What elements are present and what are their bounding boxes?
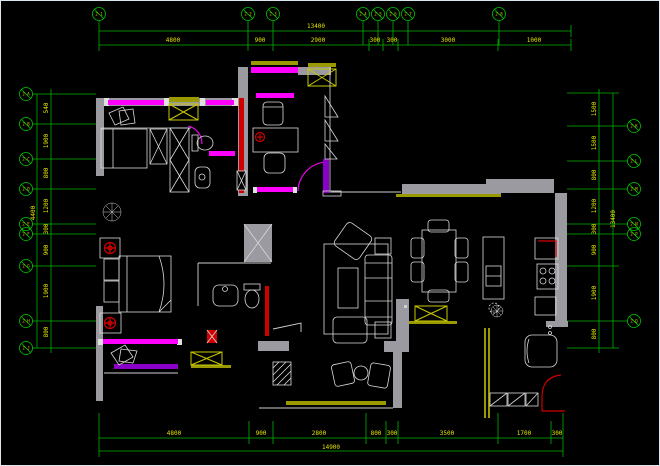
grid-axis-label: 2-5 xyxy=(374,12,382,17)
grid-axis-label: 2-B xyxy=(22,122,30,127)
grid-axis-label: 2-6 xyxy=(389,12,397,17)
dim-right-7: 1900 xyxy=(591,285,598,300)
dim-top-1: 4800 xyxy=(166,37,181,44)
dim-left-8: 800 xyxy=(43,326,50,337)
grid-axis-label: 2-L xyxy=(630,159,638,164)
low-cabinets-hatched xyxy=(490,393,538,406)
pillow xyxy=(111,345,133,365)
grid-axis-label: 2-N xyxy=(630,222,638,227)
dim-right-8: 800 xyxy=(591,328,598,339)
grid-bubbles-right: 2-K 2-L 2-M 2-N 2-P 2-Q xyxy=(628,120,641,328)
dim-left-2: 1900 xyxy=(43,133,50,148)
dim-bottom-4: 800 xyxy=(371,430,382,437)
dim-right-5: 300 xyxy=(591,223,598,234)
dim-bottom-2: 900 xyxy=(256,430,267,437)
dim-bottom-7: 1700 xyxy=(517,430,532,437)
wall-x-box xyxy=(237,171,246,190)
sink xyxy=(195,167,210,188)
round-table xyxy=(354,366,368,380)
headboard xyxy=(104,259,119,280)
dim-right-3: 800 xyxy=(591,169,598,180)
dimension-chain-top: 13400 4800 900 2900 300 300 3000 1000 xyxy=(99,21,571,51)
dim-left-7: 1900 xyxy=(43,283,50,298)
grid-axis-label: 2-Q xyxy=(630,319,638,324)
dim-right-overall: 13400 xyxy=(610,210,617,228)
window-bands xyxy=(103,61,501,418)
door-arc-study xyxy=(298,162,326,191)
dim-left-4: 1200 xyxy=(43,198,50,213)
grid-axis-label: 2-1 xyxy=(95,12,103,17)
balcony-middle xyxy=(259,361,393,408)
dimension-chain-bottom: 14900 4800 900 2800 800 300 3500 1700 30… xyxy=(99,413,563,457)
grid-axis-label: 2-E xyxy=(22,222,30,227)
dim-right-4: 1200 xyxy=(591,198,598,213)
grid-axis-label: 2-8 xyxy=(495,12,503,17)
dim-top-6: 3000 xyxy=(441,37,456,44)
dim-bottom-overall: 14900 xyxy=(322,444,340,451)
dim-right-6: 900 xyxy=(591,244,598,255)
dim-top-2: 900 xyxy=(255,37,266,44)
dim-left-5: 300 xyxy=(43,223,50,234)
grid-axis-label: 2-2 xyxy=(244,12,252,17)
walls xyxy=(96,67,568,408)
toilet-2 xyxy=(244,284,260,308)
nightstand-lamp xyxy=(100,238,120,258)
desk-symbol xyxy=(256,133,265,142)
side-table xyxy=(375,322,391,338)
cad-floor-plan-canvas: 13400 4800 900 2900 300 300 3000 1000 14… xyxy=(0,0,660,466)
grid-bubbles-top: 2-1 2-2 2-3 2-4 2-5 2-6 2-7 2-8 xyxy=(93,8,506,21)
dim-bottom-6: 3500 xyxy=(440,430,455,437)
grid-axis-label: 2-K xyxy=(630,124,638,129)
living-room xyxy=(324,221,392,343)
exhaust-fan-symbol xyxy=(491,305,503,317)
doors xyxy=(188,126,329,193)
dim-bottom-3: 2800 xyxy=(312,430,327,437)
stove-burners xyxy=(537,264,558,289)
washing-machine xyxy=(525,326,557,368)
dim-bottom-5: 300 xyxy=(387,430,398,437)
grid-axis-label: 2-D xyxy=(22,187,30,192)
dining-set xyxy=(411,220,468,302)
vanity-sink xyxy=(213,285,238,306)
utility-balcony xyxy=(490,326,557,407)
stool xyxy=(331,361,355,387)
grid-axis-label: 2-G xyxy=(22,264,30,269)
dim-right-1: 1500 xyxy=(591,101,598,116)
red-box-x xyxy=(207,330,217,343)
floor-plan-drawing: 13400 4800 900 2900 300 300 3000 1000 14… xyxy=(1,1,659,465)
dim-top-overall: 13400 xyxy=(307,23,325,30)
grid-axis-label: 2-A xyxy=(22,92,30,97)
pillow xyxy=(119,349,137,363)
dim-left-6: 900 xyxy=(43,244,50,255)
dim-right-2: 1500 xyxy=(591,135,598,150)
dim-top-4: 300 xyxy=(370,37,381,44)
grid-axis-label: 2-4 xyxy=(359,12,367,17)
double-bed xyxy=(119,256,171,312)
grid-axis-label: 2-M xyxy=(630,187,638,192)
grid-axis-label: 2-J xyxy=(22,346,29,351)
grid-axis-label: 2-H xyxy=(22,319,30,324)
side-table xyxy=(375,238,391,254)
nightstand-lamp xyxy=(100,313,121,333)
coffee-table xyxy=(338,268,358,308)
grid-axis-label: 2-3 xyxy=(269,12,277,17)
door-leaf xyxy=(323,159,329,193)
grid-axis-label: 2-F xyxy=(22,232,30,237)
dim-bottom-1: 4800 xyxy=(167,430,182,437)
kitchen xyxy=(483,237,558,315)
dim-top-7: 1000 xyxy=(527,37,542,44)
dim-top-5: 300 xyxy=(387,37,398,44)
ceiling-fan-symbol xyxy=(103,203,121,221)
floor-drain-hatch xyxy=(273,362,291,385)
dim-left-1: 540 xyxy=(43,102,50,113)
stool xyxy=(367,362,391,388)
headboard xyxy=(104,281,119,302)
grid-axis-label: 2-C xyxy=(22,157,30,162)
grid-axis-label: 2-7 xyxy=(404,12,412,17)
dimension-chain-left: 540 1900 800 1200 300 900 1900 800 4400 xyxy=(30,89,96,353)
armchair-2 xyxy=(333,317,367,343)
grid-axis-label: 2-P xyxy=(630,232,638,237)
wardrobe-x xyxy=(150,128,189,192)
dim-left-outer: 4400 xyxy=(30,205,37,220)
dim-left-3: 800 xyxy=(43,167,50,178)
dimension-chain-right: 1500 1500 800 1200 300 900 1900 800 1340… xyxy=(567,89,628,353)
dim-top-3: 2900 xyxy=(311,37,326,44)
dim-bottom-8: 300 xyxy=(552,430,563,437)
